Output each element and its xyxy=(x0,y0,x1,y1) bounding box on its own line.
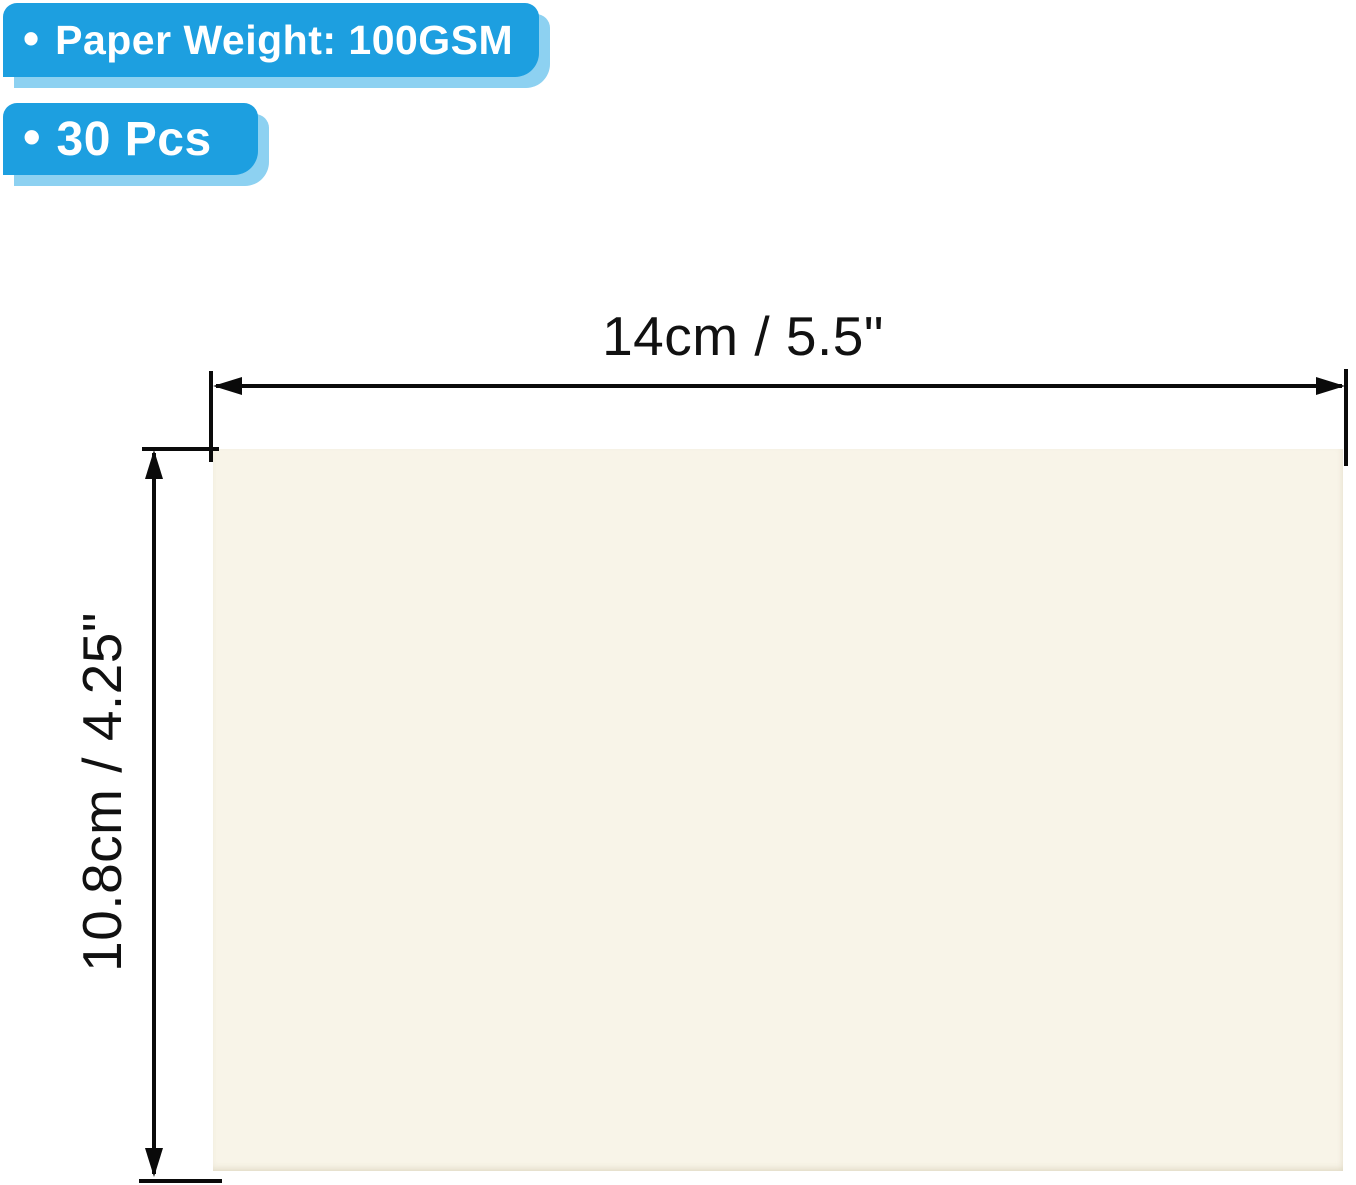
width-dimension-label: 14cm / 5.5" xyxy=(602,304,884,368)
bullet-dot-icon: • xyxy=(23,112,41,162)
height-arrowhead-bottom-icon xyxy=(145,1148,163,1177)
height-dimension-label: 10.8cm / 4.25" xyxy=(70,612,134,972)
badge-piece-count: • 30 Pcs xyxy=(3,103,258,175)
product-infographic: • Paper Weight: 100GSM • 30 Pcs 14cm / 5… xyxy=(0,0,1356,1185)
paper-card xyxy=(213,449,1343,1171)
badge-paper-weight-label: Paper Weight: 100GSM xyxy=(55,17,513,64)
width-arrowhead-right-icon xyxy=(1316,377,1345,395)
width-arrowhead-left-icon xyxy=(213,377,242,395)
badge-paper-weight: • Paper Weight: 100GSM xyxy=(3,3,539,77)
badge-piece-count-label: 30 Pcs xyxy=(57,112,212,167)
bullet-dot-icon: • xyxy=(23,15,39,61)
height-arrowhead-top-icon xyxy=(145,450,163,479)
